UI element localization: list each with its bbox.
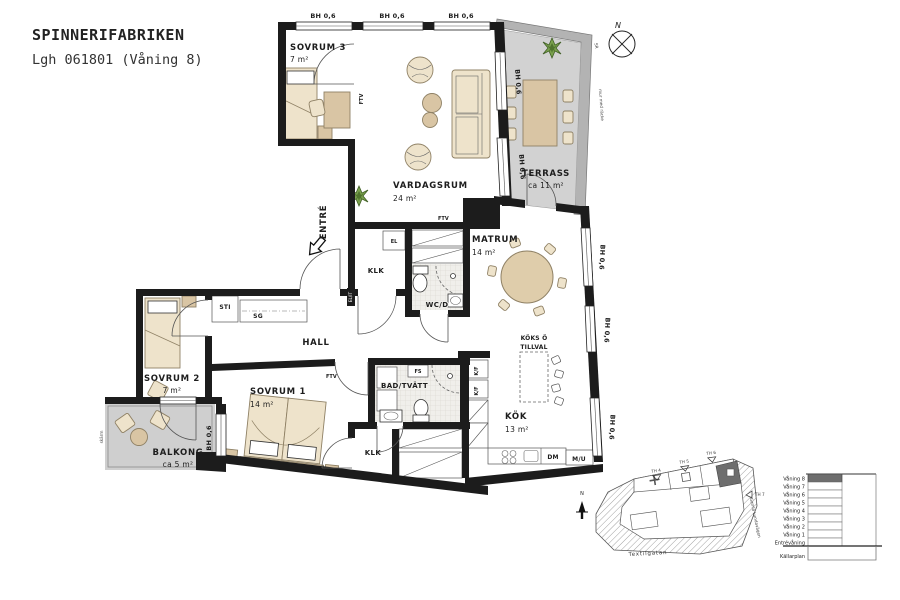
stool-symbol	[551, 355, 561, 365]
inner-building	[689, 486, 710, 502]
mur-label: mur med räcke	[598, 89, 605, 122]
ftv-label: FTV	[359, 94, 365, 105]
chair-symbol	[533, 306, 545, 317]
toilet-icon	[413, 274, 427, 292]
level-bar	[808, 506, 842, 514]
chair-symbol	[487, 265, 497, 276]
label-kok: KÖK	[505, 411, 527, 422]
toilet-tank	[413, 266, 428, 274]
level-label-2: Våning 2	[783, 524, 805, 531]
label-matrum-area: 14 m²	[472, 248, 496, 257]
skarm-label: skärm	[99, 431, 104, 444]
th5-marker: TH 5	[678, 459, 690, 465]
site-plan: TH 4 TH 5 TH 6 TH 7 N Textilgatan Gamla …	[576, 450, 765, 558]
level-label-6: Våning 6	[783, 492, 805, 499]
chair-symbol	[498, 299, 511, 312]
title-block: SPINNERIFABRIKEN Lgh 061801 (Våning 8)	[32, 26, 203, 68]
kf-label: K/F	[474, 386, 480, 395]
pillow-symbol	[287, 71, 314, 84]
sg-label: SG	[253, 313, 263, 320]
table-symbol	[523, 80, 557, 146]
label-badtvatt: BAD/TVÄTT	[381, 381, 428, 390]
label-klk-lower: KLK	[365, 449, 382, 457]
dm-label: DM	[547, 454, 558, 461]
sti-label: STI	[219, 304, 230, 311]
kitchen-island-label: KÖKS Ö	[521, 335, 548, 342]
sr-label: SR	[594, 43, 600, 49]
round-table-symbol	[501, 251, 553, 303]
pillow-symbol	[287, 444, 316, 460]
label-balkong: BALKONG	[153, 448, 204, 458]
level-label-8: Våning 8	[783, 476, 805, 483]
floor-index: Våning 8 Våning 7 Våning 6 Våning 5 Våni…	[775, 474, 882, 560]
compass: N	[609, 21, 635, 57]
level-bar	[808, 490, 842, 498]
door-entry	[300, 249, 340, 289]
chair-symbol	[544, 243, 557, 256]
level-label-entre: Entrévåning	[775, 540, 805, 547]
window-height-label: BH 0,6	[602, 317, 611, 343]
north-label: N	[615, 21, 621, 30]
stool-symbol	[554, 396, 564, 405]
inner-building	[630, 511, 658, 529]
label-vardagsrum: VARDAGSRUM	[393, 181, 468, 191]
side-table-symbol	[423, 113, 438, 128]
label-wcd: WC/D	[426, 301, 449, 309]
window-height-label: BH 0,6	[597, 244, 606, 270]
level-label-3: Våning 3	[783, 516, 805, 523]
label-kok-area: 13 m²	[505, 425, 529, 434]
kitchen-fittings	[467, 352, 593, 465]
floor-plan-sheet: SPINNERIFABRIKEN Lgh 061801 (Våning 8)	[0, 0, 900, 600]
stool-symbol	[551, 384, 561, 393]
street-textilgatan: Textilgatan	[627, 550, 667, 558]
window-height-label: BH 0,6	[310, 12, 336, 20]
tt-label: TT	[369, 375, 375, 383]
level-label-4: Våning 4	[783, 508, 805, 515]
label-klk-upper: KLK	[368, 267, 385, 275]
apartment-subtitle: Lgh 061801 (Våning 8)	[32, 51, 203, 68]
project-title: SPINNERIFABRIKEN	[32, 26, 185, 44]
desk-chair-symbol	[308, 99, 325, 118]
ftv-label: FTV	[326, 374, 337, 380]
label-sovrum1: SOVRUM 1	[250, 387, 306, 397]
desk-symbol	[324, 92, 350, 128]
label-balkong-area: ca 5 m²	[163, 460, 194, 469]
level-label-7: Våning 7	[783, 484, 805, 491]
chair-symbol	[563, 90, 573, 102]
label-entre: ENTRÉ	[317, 205, 329, 240]
toilet-icon	[414, 400, 428, 417]
level-bar-highlighted	[808, 474, 842, 482]
label-hall: HALL	[302, 338, 329, 348]
pillow-symbol	[249, 440, 278, 456]
kitchen-island-label2: TILLVAL	[520, 344, 547, 351]
el-label: EL	[391, 239, 398, 245]
th6-marker: TH 6	[705, 450, 717, 456]
window-height-label: BH 0,6	[607, 414, 616, 440]
window-height-label: BH 0,6	[205, 425, 213, 451]
label-sovrum1-area: 14 m²	[250, 400, 274, 409]
label-terrass: TERRASS	[522, 169, 570, 179]
level-bar	[808, 498, 842, 506]
washer-box	[377, 390, 397, 411]
level-label-1: Våning 1	[783, 532, 805, 539]
chair-symbol	[563, 132, 573, 144]
level-bar	[808, 482, 842, 490]
label-sovrum2: SOVRUM 2	[144, 374, 200, 384]
fs-label: FS	[414, 369, 421, 375]
round-table-symbol	[131, 429, 148, 446]
pillow-symbol	[148, 301, 177, 313]
site-north-arrow	[576, 501, 588, 519]
shower-head-icon	[448, 374, 453, 379]
armchair-symbol	[407, 57, 433, 83]
label-matrum: MATRUM	[472, 235, 518, 245]
level-label-basement: Källarplan	[780, 554, 805, 560]
label-sovrum3-area: 7 m²	[290, 55, 309, 64]
stair-symbol	[681, 472, 690, 481]
stool-symbol	[554, 370, 564, 379]
site-north-label: N	[580, 491, 584, 497]
tm-label: TM	[369, 398, 375, 406]
el-it-label: EL/IT	[348, 291, 353, 302]
dining-set	[487, 238, 567, 317]
chair-symbol	[557, 277, 567, 288]
kf-label: K/F	[474, 366, 480, 375]
level-label-5: Våning 5	[783, 500, 805, 507]
label-sovrum2-area: 7 m²	[163, 386, 182, 395]
bedroom3-furniture	[284, 68, 350, 139]
level-bar	[808, 538, 842, 546]
th7-marker: TH 7	[754, 492, 765, 497]
shaft	[399, 429, 462, 478]
basement-outline	[808, 546, 876, 560]
window-height-label: BH 0,6	[448, 12, 474, 20]
wc-d-room	[412, 230, 463, 310]
label-vardagsrum-area: 24 m²	[393, 194, 417, 203]
door-klk-lower	[322, 438, 352, 468]
window-height-label: BH 0,6	[379, 12, 405, 20]
level-bar	[808, 530, 842, 538]
door-klk-upper	[358, 296, 396, 334]
door-bedroom1	[335, 362, 368, 395]
label-terrass-area: ca 11 m²	[528, 181, 564, 190]
toilet-tank	[413, 415, 429, 422]
shower-head-icon	[451, 274, 456, 279]
level-bar	[808, 522, 842, 530]
mu-label: M/U	[572, 456, 586, 463]
level-bar	[808, 514, 842, 522]
livingroom-furniture	[405, 57, 490, 170]
kitchen-island-optional	[520, 352, 548, 402]
chair-symbol	[563, 111, 573, 123]
th4-marker: TH 4	[650, 468, 662, 474]
label-sovrum3: SOVRUM 3	[290, 43, 346, 53]
ftv-label: FTV	[438, 216, 449, 222]
armchair-symbol	[405, 144, 431, 170]
side-table-symbol	[423, 94, 442, 113]
door-wcd	[420, 314, 448, 342]
